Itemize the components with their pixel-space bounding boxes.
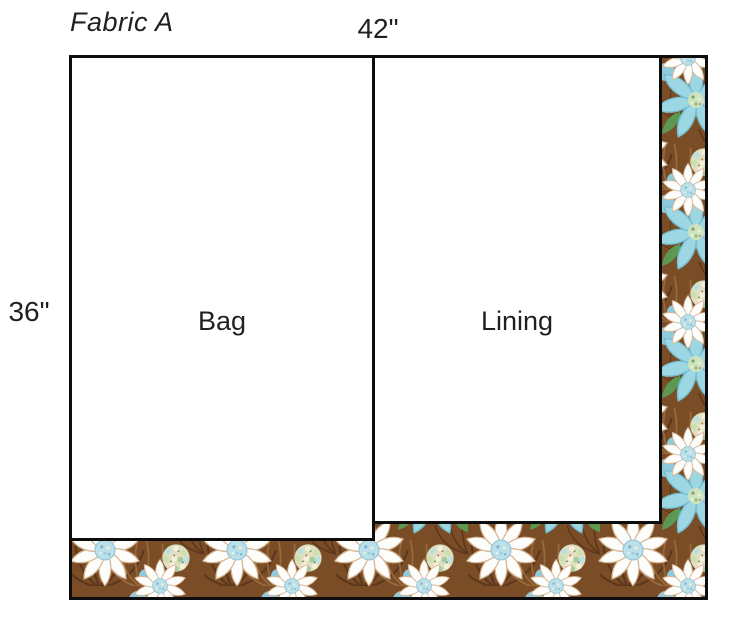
lining-piece: Lining bbox=[372, 55, 662, 524]
bag-piece: Bag bbox=[69, 55, 375, 541]
fabric-name-label: Fabric A bbox=[70, 7, 174, 38]
height-dimension-label: 36" bbox=[0, 296, 58, 328]
width-dimension-label: 42" bbox=[336, 13, 420, 45]
fabric-layout-diagram: Fabric A 42" 36" bbox=[0, 0, 749, 622]
bag-piece-label: Bag bbox=[72, 306, 372, 337]
lining-piece-label: Lining bbox=[375, 306, 659, 337]
